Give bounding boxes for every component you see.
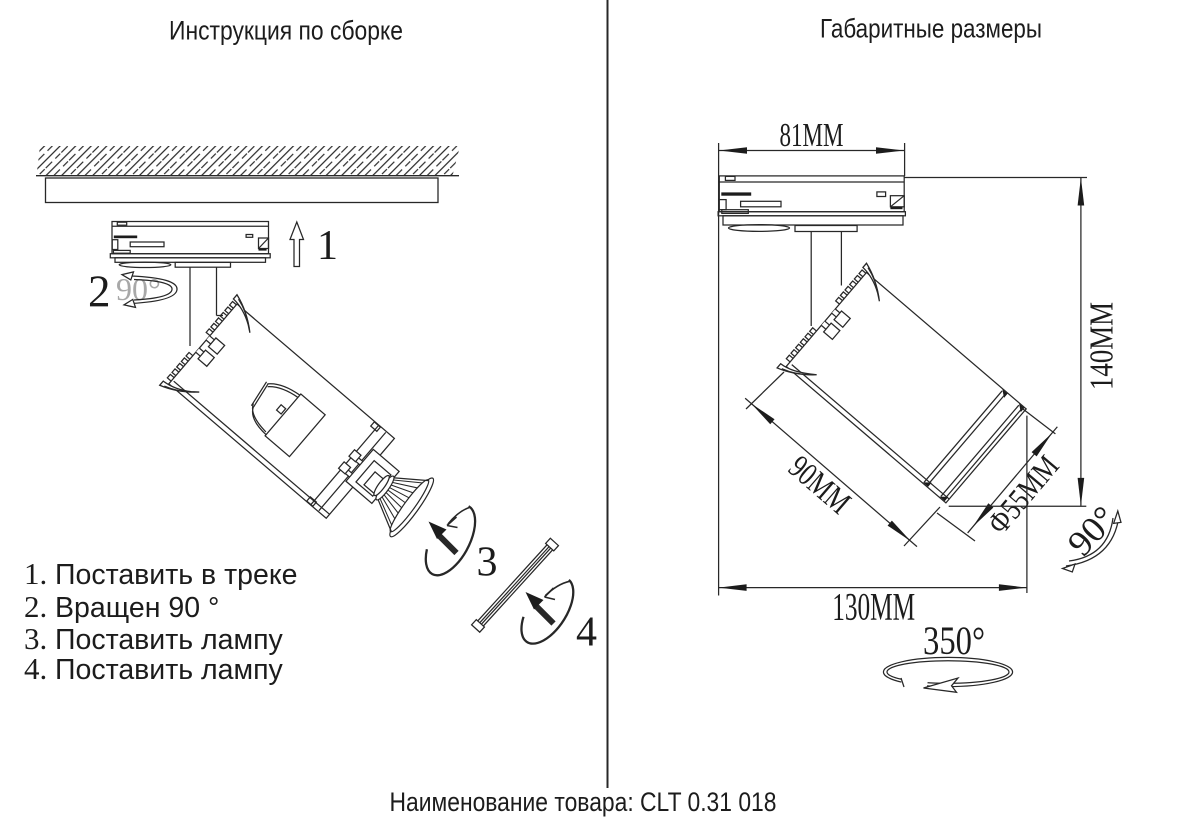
svg-text:1. Поставить в треке: 1. Поставить в треке <box>24 556 298 591</box>
svg-text:90MM: 90MM <box>781 449 857 521</box>
svg-text:3: 3 <box>477 540 498 586</box>
svg-text:4. Поставить лампу: 4. Поставить лампу <box>24 651 284 686</box>
svg-text:4: 4 <box>576 610 597 656</box>
svg-text:Инструкция по сборке: Инструкция по сборке <box>169 16 403 46</box>
svg-text:2: 2 <box>88 267 111 317</box>
svg-text:Габаритные размеры: Габаритные размеры <box>820 14 1042 44</box>
svg-text:140MM: 140MM <box>1084 302 1121 390</box>
svg-text:Ф55MM: Ф55MM <box>980 449 1065 541</box>
svg-text:130MM: 130MM <box>832 586 915 629</box>
svg-text:Наименование товара: CLT 0.31: Наименование товара: CLT 0.31 018 <box>390 787 777 817</box>
svg-text:3. Поставить лампу: 3. Поставить лампу <box>24 621 284 656</box>
svg-text:1: 1 <box>317 223 338 269</box>
svg-text:81MM: 81MM <box>780 117 844 154</box>
svg-text:2. Вращен 90 °: 2. Вращен 90 ° <box>24 589 219 624</box>
svg-text:350°: 350° <box>923 618 985 663</box>
